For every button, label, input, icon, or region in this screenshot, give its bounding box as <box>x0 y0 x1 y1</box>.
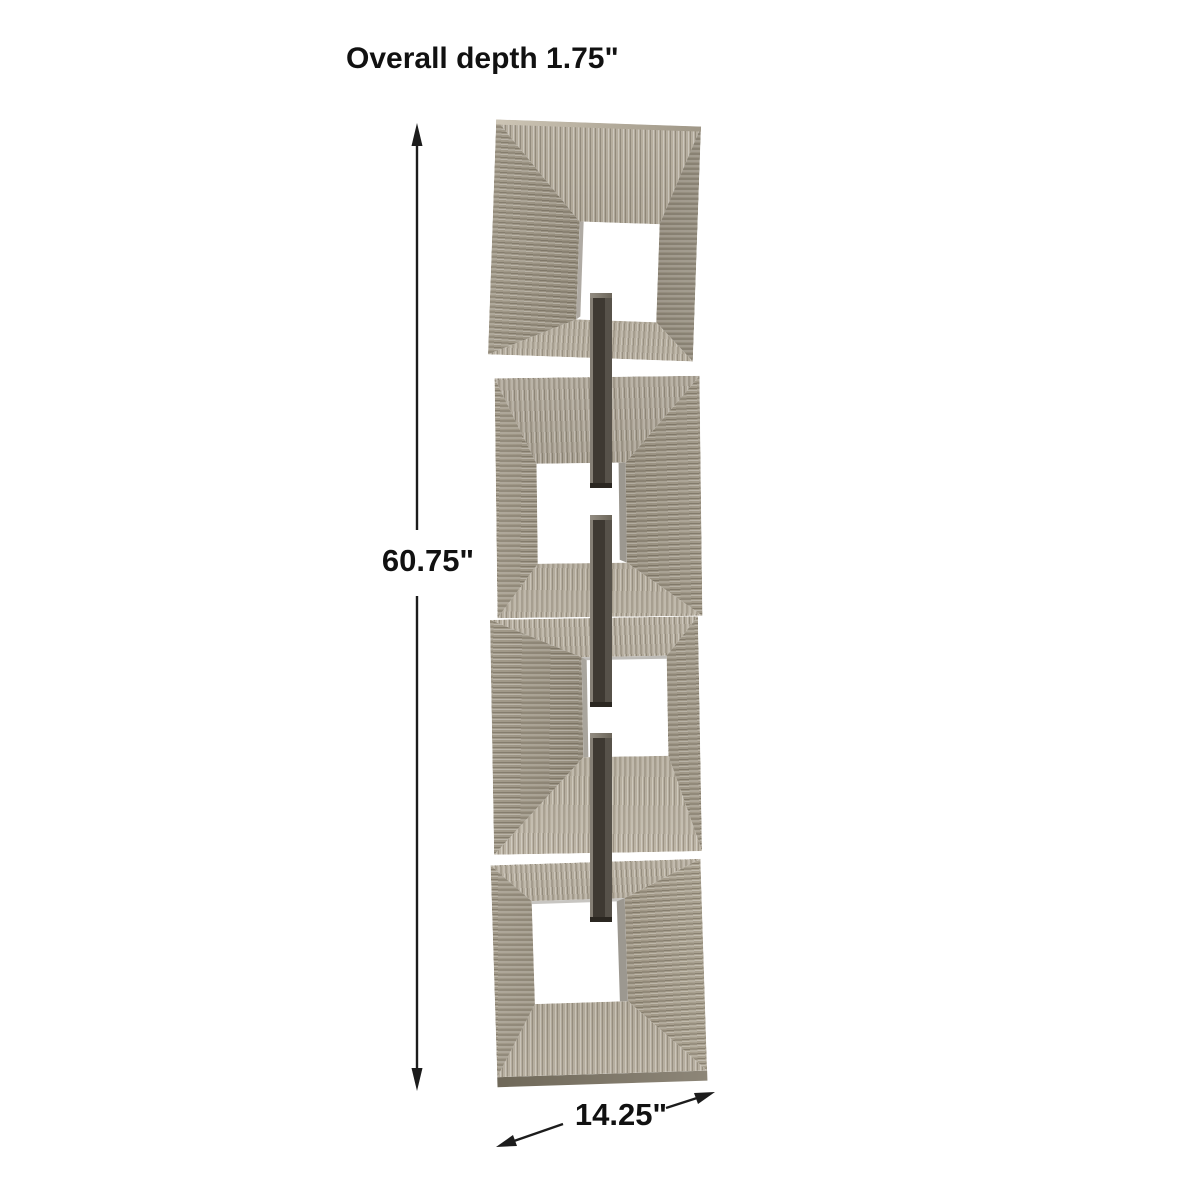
height-dimension-line <box>412 123 423 1091</box>
panel-opening <box>532 898 628 1004</box>
overall-depth-label: Overall depth 1.75" <box>346 42 619 76</box>
product-dimension-diagram: Overall depth 1.75" 60.75" 14.25" <box>0 0 1194 1194</box>
panel-opening <box>537 463 627 564</box>
arrow-right-icon <box>694 1092 715 1104</box>
height-label: 60.75" <box>380 543 476 579</box>
arrow-down-icon <box>412 1068 423 1091</box>
width-label: 14.25" <box>572 1097 670 1133</box>
link-bar-segment-3 <box>590 733 612 922</box>
link-bar-segment-1 <box>590 293 612 488</box>
arrow-left-icon <box>496 1135 517 1147</box>
panel-opening <box>576 221 659 322</box>
link-bar-segment-2 <box>590 515 612 707</box>
arrow-up-icon <box>412 123 423 146</box>
